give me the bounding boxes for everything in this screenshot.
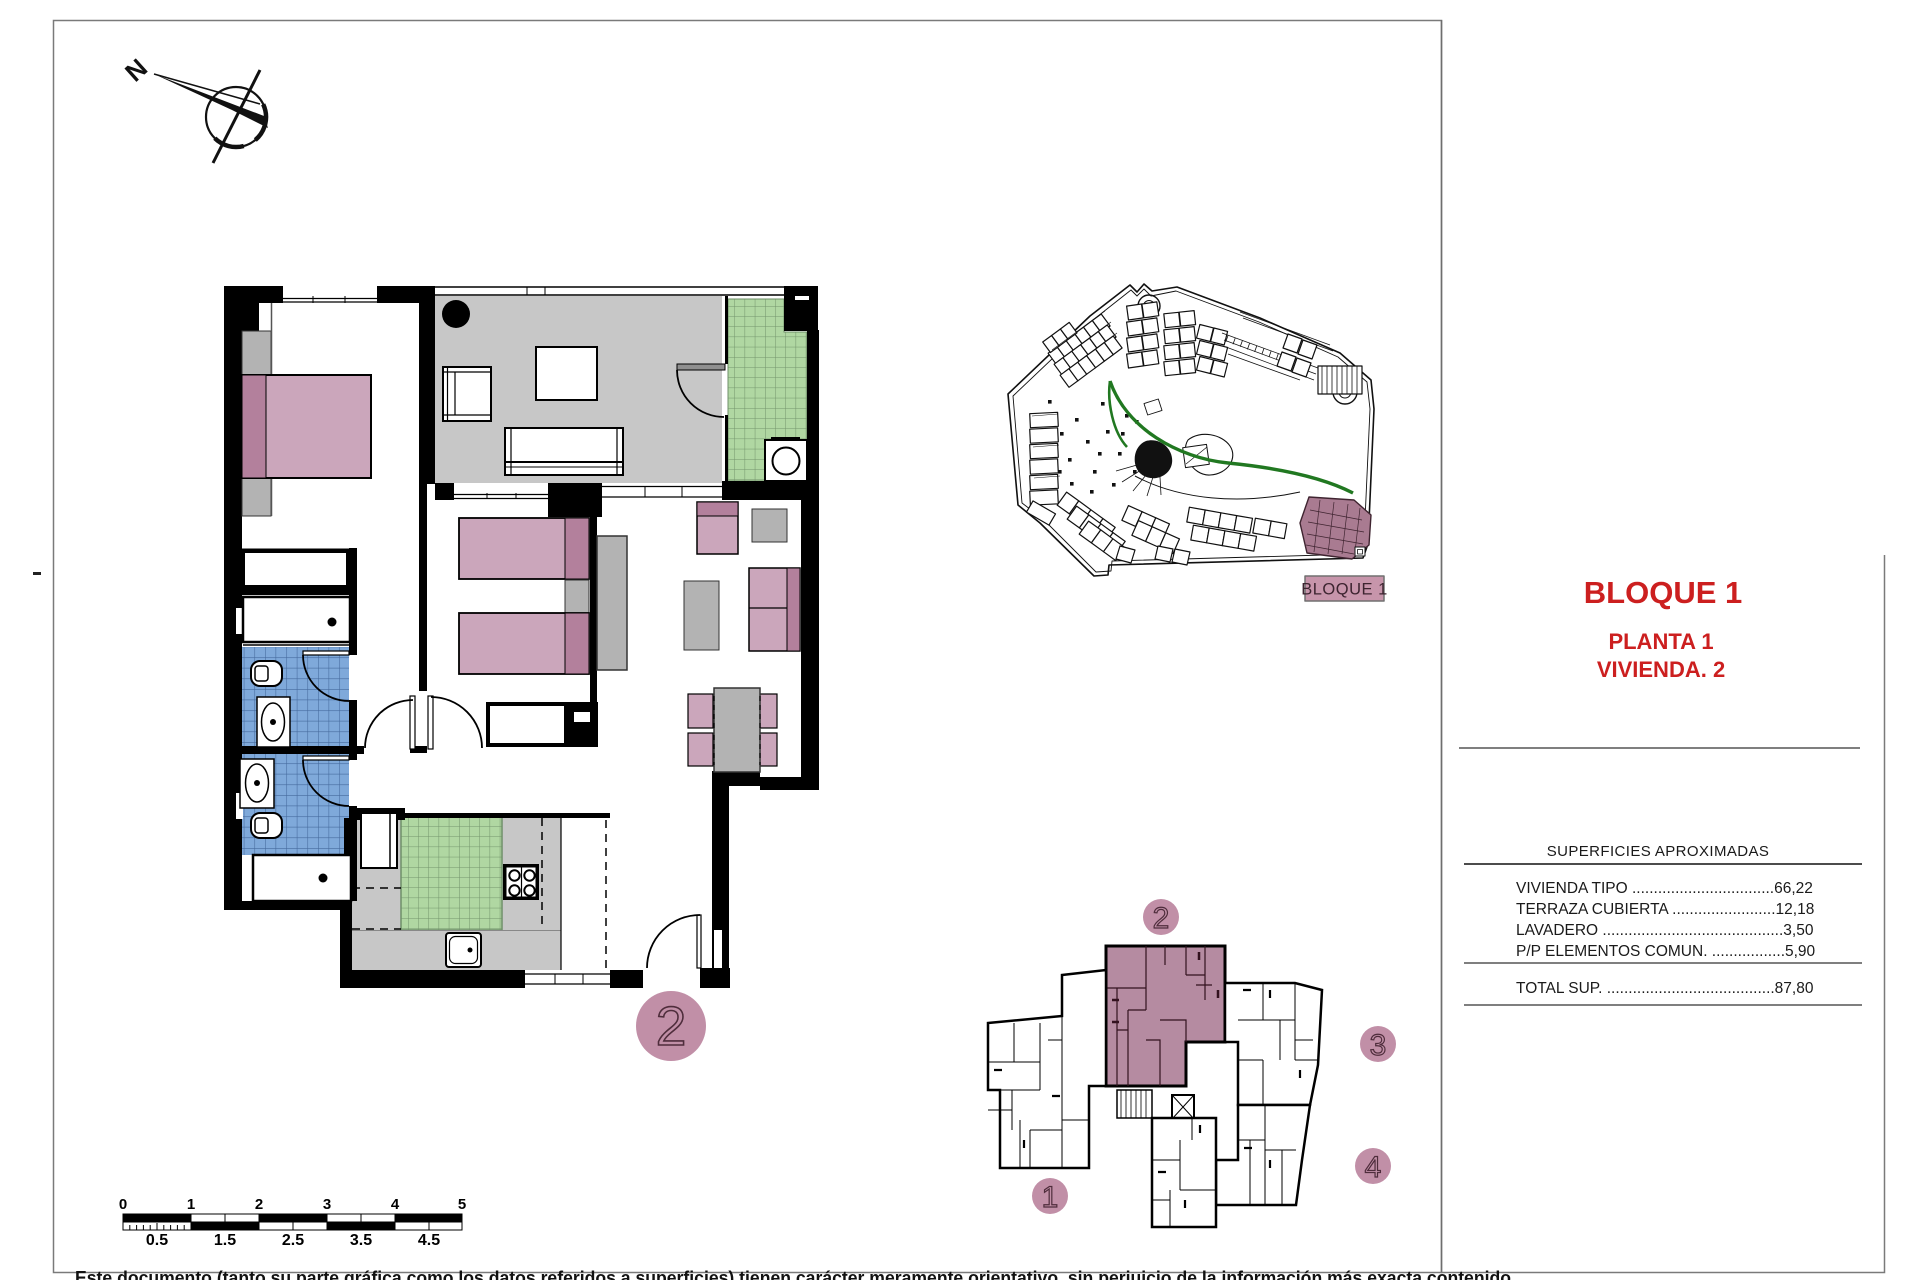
svg-text:2: 2 <box>255 1196 263 1213</box>
svg-text:4.5: 4.5 <box>418 1232 440 1249</box>
svg-text:0: 0 <box>119 1196 127 1213</box>
svg-text:BLOQUE 1: BLOQUE 1 <box>1584 575 1742 610</box>
svg-text:4: 4 <box>1365 1151 1382 1184</box>
svg-text:P/P ELEMENTOS COMUN. .........: P/P ELEMENTOS COMUN. .................5,… <box>1516 943 1816 960</box>
svg-text:3: 3 <box>1370 1029 1387 1062</box>
svg-text:VIVIENDA. 2: VIVIENDA. 2 <box>1597 657 1725 682</box>
svg-text:TERRAZA CUBIERTA .............: TERRAZA CUBIERTA .......................… <box>1516 901 1814 918</box>
svg-text:1: 1 <box>187 1196 195 1213</box>
svg-text:3.5: 3.5 <box>350 1232 372 1249</box>
svg-text:SUPERFICIES APROXIMADAS: SUPERFICIES APROXIMADAS <box>1547 843 1770 860</box>
svg-text:2.5: 2.5 <box>282 1232 304 1249</box>
svg-text:2: 2 <box>1153 902 1170 935</box>
svg-text:VIVIENDA TIPO ................: VIVIENDA TIPO ..........................… <box>1516 880 1813 897</box>
svg-text:PLANTA 1: PLANTA 1 <box>1608 629 1713 654</box>
svg-text:TOTAL SUP. ...................: TOTAL SUP. .............................… <box>1516 980 1814 997</box>
svg-text:5: 5 <box>458 1196 466 1213</box>
svg-text:4: 4 <box>391 1196 400 1213</box>
svg-text:0.5: 0.5 <box>146 1232 168 1249</box>
svg-text:LAVADERO .....................: LAVADERO ...............................… <box>1516 922 1814 939</box>
svg-text:Este documento (tanto su parte: Este documento (tanto su parte gráfica c… <box>75 1268 1511 1280</box>
svg-text:1.5: 1.5 <box>214 1232 236 1249</box>
svg-text:BLOQUE 1: BLOQUE 1 <box>1301 581 1388 599</box>
svg-text:3: 3 <box>323 1196 331 1213</box>
svg-text:1: 1 <box>1042 1181 1059 1214</box>
svg-text:2: 2 <box>656 995 687 1057</box>
